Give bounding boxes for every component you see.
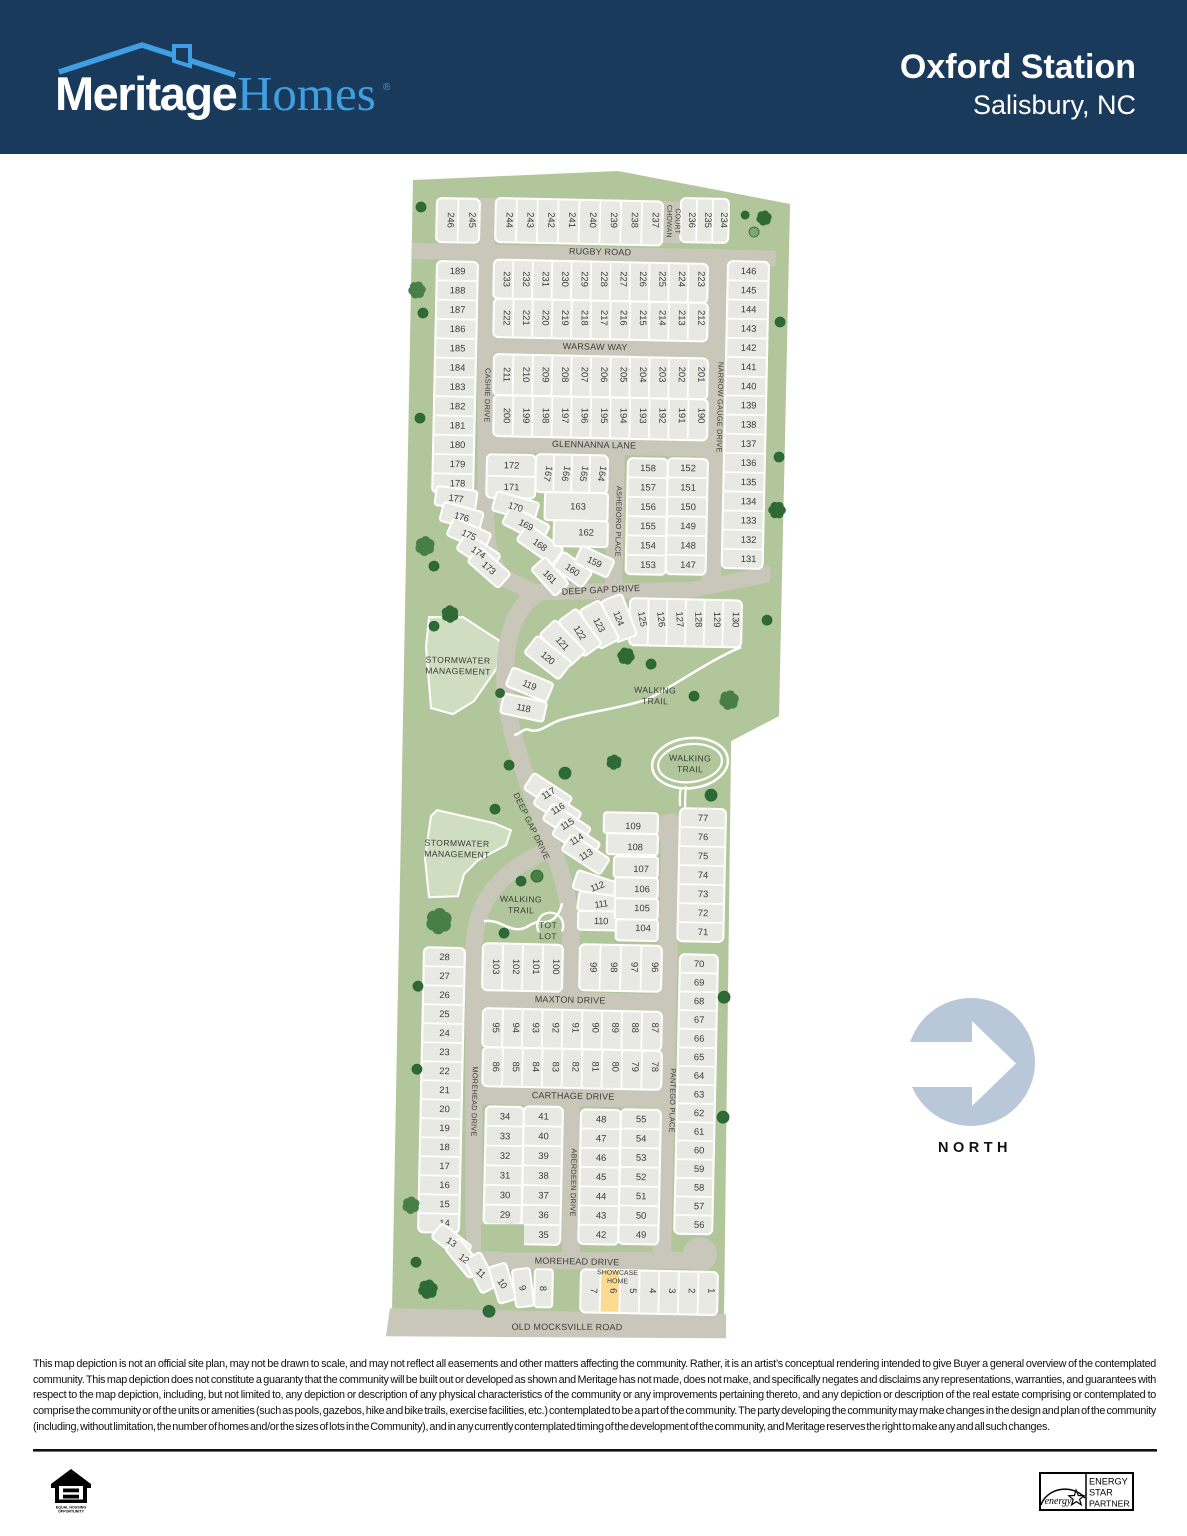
svg-text:MAXTON DRIVE: MAXTON DRIVE <box>535 994 606 1005</box>
svg-text:28: 28 <box>439 951 450 962</box>
svg-text:52: 52 <box>636 1171 647 1182</box>
svg-text:68: 68 <box>694 995 705 1006</box>
svg-text:Meritage: Meritage <box>55 67 237 120</box>
svg-text:240: 240 <box>588 212 599 228</box>
svg-text:82: 82 <box>570 1061 581 1072</box>
svg-text:WALKING: WALKING <box>669 753 711 764</box>
svg-text:89: 89 <box>610 1022 621 1033</box>
svg-text:74: 74 <box>698 869 709 880</box>
svg-text:182: 182 <box>450 400 466 411</box>
svg-text:23: 23 <box>439 1046 450 1057</box>
svg-text:80: 80 <box>610 1061 621 1072</box>
svg-text:67: 67 <box>694 1014 705 1025</box>
svg-text:213: 213 <box>677 310 688 326</box>
svg-text:RUGBY ROAD: RUGBY ROAD <box>569 246 632 257</box>
svg-text:44: 44 <box>596 1190 607 1201</box>
svg-text:NORTH: NORTH <box>938 1140 1012 1156</box>
svg-text:Homes: Homes <box>237 66 376 121</box>
svg-text:70: 70 <box>694 958 705 969</box>
svg-text:241: 241 <box>567 212 578 228</box>
svg-text:72: 72 <box>698 907 709 918</box>
svg-text:®: ® <box>383 82 391 93</box>
svg-text:158: 158 <box>640 462 656 473</box>
svg-text:101: 101 <box>531 959 542 975</box>
svg-text:96: 96 <box>650 962 661 973</box>
svg-text:STAR: STAR <box>1089 1488 1113 1498</box>
svg-text:51: 51 <box>636 1190 647 1201</box>
svg-text:245: 245 <box>467 212 478 228</box>
svg-text:Oxford Station: Oxford Station <box>900 48 1136 86</box>
svg-text:57: 57 <box>694 1200 705 1211</box>
svg-text:102: 102 <box>511 959 522 975</box>
svg-text:199: 199 <box>521 408 532 424</box>
svg-text:193: 193 <box>638 408 649 424</box>
svg-text:131: 131 <box>741 553 757 564</box>
svg-text:50: 50 <box>636 1209 647 1220</box>
svg-text:34: 34 <box>500 1110 511 1121</box>
svg-text:PARTNER: PARTNER <box>1089 1499 1130 1509</box>
svg-text:87: 87 <box>650 1022 661 1033</box>
svg-text:205: 205 <box>618 367 629 383</box>
svg-text:5: 5 <box>628 1288 639 1293</box>
svg-text:141: 141 <box>741 361 757 372</box>
svg-text:137: 137 <box>741 438 757 449</box>
svg-text:OLD MOCKSVILLE ROAD: OLD MOCKSVILLE ROAD <box>512 1322 623 1332</box>
svg-text:147: 147 <box>680 559 696 570</box>
svg-text:163: 163 <box>570 500 586 511</box>
svg-text:ENERGY: ENERGY <box>1089 1477 1128 1487</box>
svg-text:38: 38 <box>538 1170 549 1181</box>
svg-text:138: 138 <box>741 419 757 430</box>
svg-text:WALKING: WALKING <box>500 894 542 905</box>
svg-text:233: 233 <box>502 271 513 287</box>
svg-text:53: 53 <box>636 1152 647 1163</box>
svg-text:211: 211 <box>502 367 513 382</box>
svg-text:190: 190 <box>696 408 707 424</box>
svg-text:198: 198 <box>541 408 552 424</box>
svg-text:47: 47 <box>596 1132 607 1143</box>
svg-text:145: 145 <box>741 284 757 295</box>
svg-text:61: 61 <box>694 1126 705 1137</box>
svg-text:59: 59 <box>694 1163 705 1174</box>
svg-text:155: 155 <box>640 520 656 531</box>
svg-text:220: 220 <box>540 310 551 326</box>
svg-text:106: 106 <box>634 883 650 894</box>
svg-text:216: 216 <box>618 310 629 326</box>
svg-text:223: 223 <box>696 271 707 287</box>
svg-text:180: 180 <box>450 439 466 450</box>
svg-text:MOREHEAD DRIVE: MOREHEAD DRIVE <box>535 1256 620 1268</box>
svg-text:201: 201 <box>696 367 707 383</box>
svg-text:71: 71 <box>698 926 709 937</box>
svg-text:HOME: HOME <box>607 1278 629 1285</box>
svg-text:230: 230 <box>560 271 571 287</box>
svg-text:SHOWCASE: SHOWCASE <box>597 1269 638 1277</box>
svg-text:219: 219 <box>560 310 571 326</box>
svg-text:65: 65 <box>694 1051 705 1062</box>
svg-text:35: 35 <box>538 1229 549 1240</box>
svg-text:151: 151 <box>680 481 696 492</box>
svg-text:63: 63 <box>694 1088 705 1099</box>
svg-text:21: 21 <box>439 1084 450 1095</box>
svg-text:43: 43 <box>596 1209 607 1220</box>
svg-text:171: 171 <box>504 481 520 492</box>
svg-text:62: 62 <box>694 1107 705 1118</box>
svg-text:45: 45 <box>596 1171 607 1182</box>
svg-text:127: 127 <box>674 611 686 627</box>
svg-text:108: 108 <box>627 841 643 852</box>
svg-text:225: 225 <box>657 271 668 287</box>
svg-text:energy: energy <box>1045 1496 1072 1507</box>
svg-text:179: 179 <box>450 458 466 469</box>
svg-text:33: 33 <box>500 1130 511 1141</box>
svg-text:239: 239 <box>609 212 620 228</box>
svg-text:32: 32 <box>500 1150 511 1161</box>
svg-text:41: 41 <box>538 1110 549 1121</box>
svg-text:30: 30 <box>500 1189 511 1200</box>
svg-text:186: 186 <box>450 323 466 334</box>
svg-text:1: 1 <box>706 1288 717 1293</box>
svg-text:84: 84 <box>531 1061 542 1072</box>
svg-text:236: 236 <box>687 212 698 228</box>
svg-text:237: 237 <box>650 212 661 228</box>
svg-text:143: 143 <box>741 322 757 333</box>
svg-text:183: 183 <box>450 381 466 392</box>
svg-text:210: 210 <box>521 367 532 383</box>
svg-text:CASHIE DRIVE: CASHIE DRIVE <box>482 368 492 423</box>
svg-text:105: 105 <box>634 902 650 913</box>
svg-text:134: 134 <box>741 495 757 506</box>
svg-text:27: 27 <box>439 970 450 981</box>
svg-text:25: 25 <box>439 1008 450 1019</box>
svg-text:109: 109 <box>625 820 641 831</box>
svg-text:73: 73 <box>698 888 709 899</box>
svg-text:81: 81 <box>590 1061 601 1072</box>
svg-text:189: 189 <box>450 265 466 276</box>
svg-text:132: 132 <box>741 534 757 545</box>
svg-text:231: 231 <box>540 271 551 287</box>
svg-text:133: 133 <box>741 514 757 525</box>
svg-text:24: 24 <box>439 1027 450 1038</box>
svg-text:PANTEGO PLACE: PANTEGO PLACE <box>667 1068 677 1133</box>
svg-text:139: 139 <box>741 399 757 410</box>
svg-text:56: 56 <box>694 1219 705 1230</box>
svg-text:46: 46 <box>596 1152 607 1163</box>
svg-text:244: 244 <box>504 212 515 228</box>
svg-text:103: 103 <box>491 959 502 975</box>
svg-text:100: 100 <box>551 959 562 975</box>
svg-text:TRAIL: TRAIL <box>508 905 535 916</box>
svg-text:196: 196 <box>579 408 590 424</box>
svg-text:19: 19 <box>439 1122 450 1133</box>
svg-text:GLENNANNA LANE: GLENNANNA LANE <box>552 439 637 451</box>
svg-text:195: 195 <box>599 408 610 424</box>
svg-text:192: 192 <box>657 408 668 424</box>
svg-text:15: 15 <box>439 1198 450 1209</box>
svg-text:157: 157 <box>640 481 656 492</box>
svg-text:140: 140 <box>741 380 757 391</box>
svg-text:48: 48 <box>596 1113 607 1124</box>
svg-text:97: 97 <box>629 962 640 973</box>
svg-text:22: 22 <box>439 1065 450 1076</box>
svg-text:17: 17 <box>439 1160 450 1171</box>
svg-text:MANAGEMENT: MANAGEMENT <box>424 848 490 859</box>
svg-text:2: 2 <box>687 1288 698 1293</box>
svg-text:66: 66 <box>694 1032 705 1043</box>
svg-text:42: 42 <box>596 1229 607 1240</box>
svg-text:208: 208 <box>560 367 571 383</box>
svg-text:214: 214 <box>657 310 668 326</box>
svg-text:WARSAW WAY: WARSAW WAY <box>563 341 628 352</box>
svg-text:40: 40 <box>538 1130 549 1141</box>
svg-text:107: 107 <box>633 863 649 874</box>
svg-text:18: 18 <box>439 1141 450 1152</box>
svg-text:CARTHAGE DRIVE: CARTHAGE DRIVE <box>532 1090 615 1102</box>
svg-text:COURT: COURT <box>673 208 681 234</box>
svg-text:TRAIL: TRAIL <box>677 764 704 775</box>
svg-text:209: 209 <box>540 367 551 383</box>
svg-text:187: 187 <box>450 304 466 315</box>
svg-text:226: 226 <box>638 271 649 287</box>
svg-text:242: 242 <box>546 212 557 228</box>
svg-text:128: 128 <box>693 611 704 627</box>
svg-text:148: 148 <box>680 539 696 550</box>
svg-text:94: 94 <box>511 1022 522 1033</box>
svg-text:197: 197 <box>560 408 571 424</box>
svg-text:55: 55 <box>636 1113 647 1124</box>
svg-text:191: 191 <box>677 408 688 424</box>
svg-text:78: 78 <box>650 1061 661 1072</box>
svg-text:194: 194 <box>618 408 629 424</box>
svg-text:135: 135 <box>741 476 757 487</box>
svg-text:29: 29 <box>500 1209 511 1220</box>
svg-text:ASHEBORO PLACE: ASHEBORO PLACE <box>613 486 623 557</box>
svg-text:221: 221 <box>521 310 532 326</box>
svg-text:37: 37 <box>538 1189 549 1200</box>
svg-text:79: 79 <box>630 1061 641 1072</box>
svg-text:98: 98 <box>609 962 620 973</box>
svg-text:91: 91 <box>570 1022 581 1033</box>
svg-text:TRAIL: TRAIL <box>642 696 669 707</box>
svg-text:235: 235 <box>703 212 714 228</box>
svg-text:OPPORTUNITY: OPPORTUNITY <box>58 1510 85 1514</box>
svg-text:184: 184 <box>450 362 466 373</box>
svg-text:234: 234 <box>719 212 730 228</box>
svg-text:88: 88 <box>630 1022 641 1033</box>
svg-text:185: 185 <box>450 342 466 353</box>
svg-text:232: 232 <box>521 271 532 287</box>
svg-text:20: 20 <box>439 1103 450 1114</box>
svg-text:130: 130 <box>731 612 742 628</box>
svg-text:126: 126 <box>655 611 668 628</box>
svg-text:215: 215 <box>638 310 649 326</box>
svg-text:129: 129 <box>712 612 723 628</box>
svg-text:NARROW GAUGE DRIVE: NARROW GAUGE DRIVE <box>715 362 726 453</box>
svg-text:144: 144 <box>741 303 757 314</box>
svg-text:162: 162 <box>578 526 594 537</box>
svg-text:54: 54 <box>636 1132 647 1143</box>
svg-text:92: 92 <box>551 1022 562 1033</box>
svg-text:177: 177 <box>448 492 464 505</box>
svg-text:26: 26 <box>439 989 450 1000</box>
svg-text:152: 152 <box>680 462 696 473</box>
svg-text:3: 3 <box>667 1288 678 1293</box>
svg-text:217: 217 <box>599 310 610 326</box>
svg-text:58: 58 <box>694 1181 705 1192</box>
svg-text:104: 104 <box>635 922 651 933</box>
svg-text:MOREHEAD DRIVE: MOREHEAD DRIVE <box>469 1066 479 1136</box>
svg-text:136: 136 <box>741 457 757 468</box>
svg-text:206: 206 <box>599 367 610 383</box>
svg-text:83: 83 <box>551 1061 562 1072</box>
svg-text:228: 228 <box>599 271 610 287</box>
svg-text:203: 203 <box>657 367 668 383</box>
svg-text:39: 39 <box>538 1150 549 1161</box>
svg-text:156: 156 <box>640 501 656 512</box>
svg-text:8: 8 <box>538 1286 549 1291</box>
svg-text:ABERDEEN DRIVE: ABERDEEN DRIVE <box>568 1148 578 1216</box>
svg-text:60: 60 <box>694 1144 705 1155</box>
svg-text:WALKING: WALKING <box>634 685 676 696</box>
svg-text:7: 7 <box>589 1288 600 1293</box>
svg-text:95: 95 <box>491 1022 502 1033</box>
svg-text:188: 188 <box>450 284 466 295</box>
svg-text:149: 149 <box>680 520 696 531</box>
svg-text:146: 146 <box>741 265 757 276</box>
svg-text:111: 111 <box>594 897 609 910</box>
svg-text:STORMWATER: STORMWATER <box>425 837 490 848</box>
svg-text:CHOWAN: CHOWAN <box>665 205 673 238</box>
svg-text:200: 200 <box>502 408 513 424</box>
svg-text:86: 86 <box>491 1061 502 1072</box>
svg-text:85: 85 <box>511 1061 522 1072</box>
svg-text:212: 212 <box>696 310 707 326</box>
svg-text:110: 110 <box>594 915 608 926</box>
svg-text:75: 75 <box>698 850 709 861</box>
svg-text:238: 238 <box>630 212 641 228</box>
svg-text:181: 181 <box>450 419 466 430</box>
svg-text:TOT: TOT <box>539 920 558 930</box>
svg-text:142: 142 <box>741 342 757 353</box>
svg-text:90: 90 <box>590 1022 601 1033</box>
svg-text:Salisbury, NC: Salisbury, NC <box>973 90 1136 120</box>
svg-text:64: 64 <box>694 1070 705 1081</box>
svg-text:77: 77 <box>698 812 709 823</box>
svg-text:31: 31 <box>500 1169 511 1180</box>
svg-text:150: 150 <box>680 501 696 512</box>
svg-text:36: 36 <box>538 1209 549 1220</box>
svg-text:6: 6 <box>608 1288 619 1293</box>
svg-text:204: 204 <box>638 367 649 383</box>
svg-text:76: 76 <box>698 831 709 842</box>
svg-text:STORMWATER: STORMWATER <box>425 654 490 665</box>
svg-text:243: 243 <box>525 212 536 228</box>
svg-text:224: 224 <box>677 271 688 287</box>
svg-text:246: 246 <box>446 212 457 228</box>
svg-text:227: 227 <box>618 271 629 287</box>
svg-text:MANAGEMENT: MANAGEMENT <box>425 665 491 676</box>
svg-text:93: 93 <box>531 1022 542 1033</box>
svg-text:4: 4 <box>648 1288 659 1293</box>
svg-text:218: 218 <box>579 310 590 326</box>
svg-text:LOT: LOT <box>539 931 557 941</box>
svg-text:154: 154 <box>640 539 656 550</box>
svg-text:229: 229 <box>579 271 590 287</box>
svg-text:99: 99 <box>588 962 599 973</box>
svg-text:207: 207 <box>579 367 590 383</box>
svg-text:172: 172 <box>504 459 520 470</box>
svg-text:153: 153 <box>640 559 656 570</box>
svg-text:202: 202 <box>677 367 688 383</box>
svg-text:222: 222 <box>502 310 513 326</box>
svg-text:69: 69 <box>694 977 705 988</box>
svg-text:16: 16 <box>439 1179 450 1190</box>
svg-text:49: 49 <box>636 1229 647 1240</box>
